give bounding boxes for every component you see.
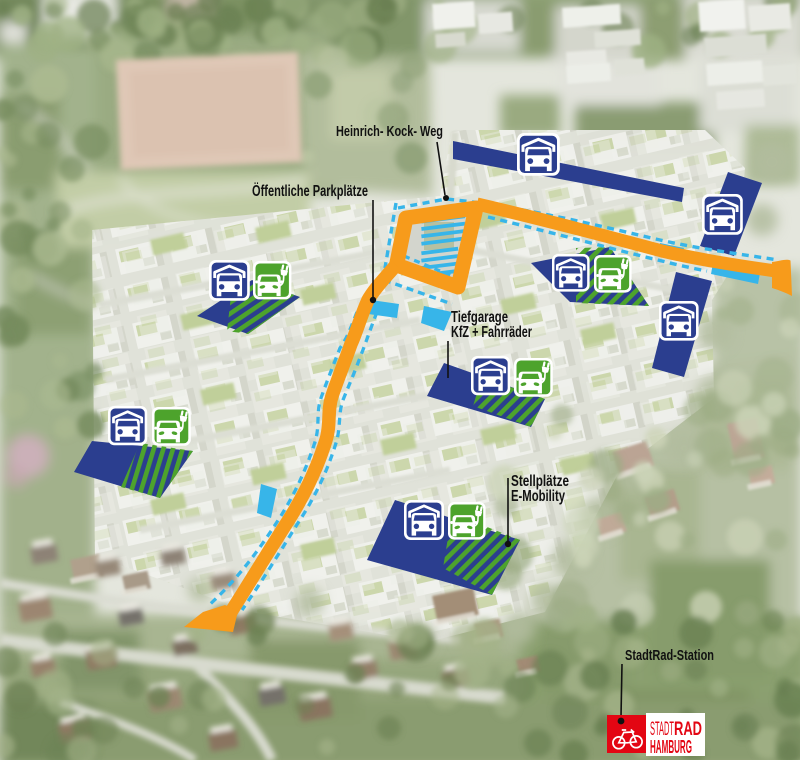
svg-text:HAMBURG: HAMBURG (650, 737, 692, 757)
svg-text:Heinrich- Kock- Weg: Heinrich- Kock- Weg (336, 123, 443, 140)
svg-text:KfZ + Fahrräder: KfZ + Fahrräder (451, 324, 532, 341)
svg-text:StadtRad-Station: StadtRad-Station (625, 647, 714, 664)
svg-text:Öffentliche Parkplätze: Öffentliche Parkplätze (252, 181, 368, 200)
svg-text:E-Mobility: E-Mobility (511, 488, 565, 505)
